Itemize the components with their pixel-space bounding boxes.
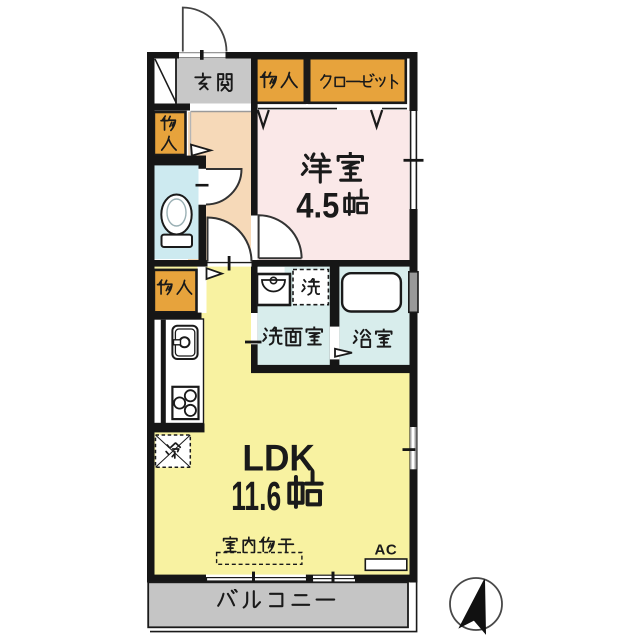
svg-text:11.6: 11.6 xyxy=(231,473,281,519)
svg-text:4.5: 4.5 xyxy=(296,187,339,226)
svg-text:AC: AC xyxy=(375,542,398,559)
